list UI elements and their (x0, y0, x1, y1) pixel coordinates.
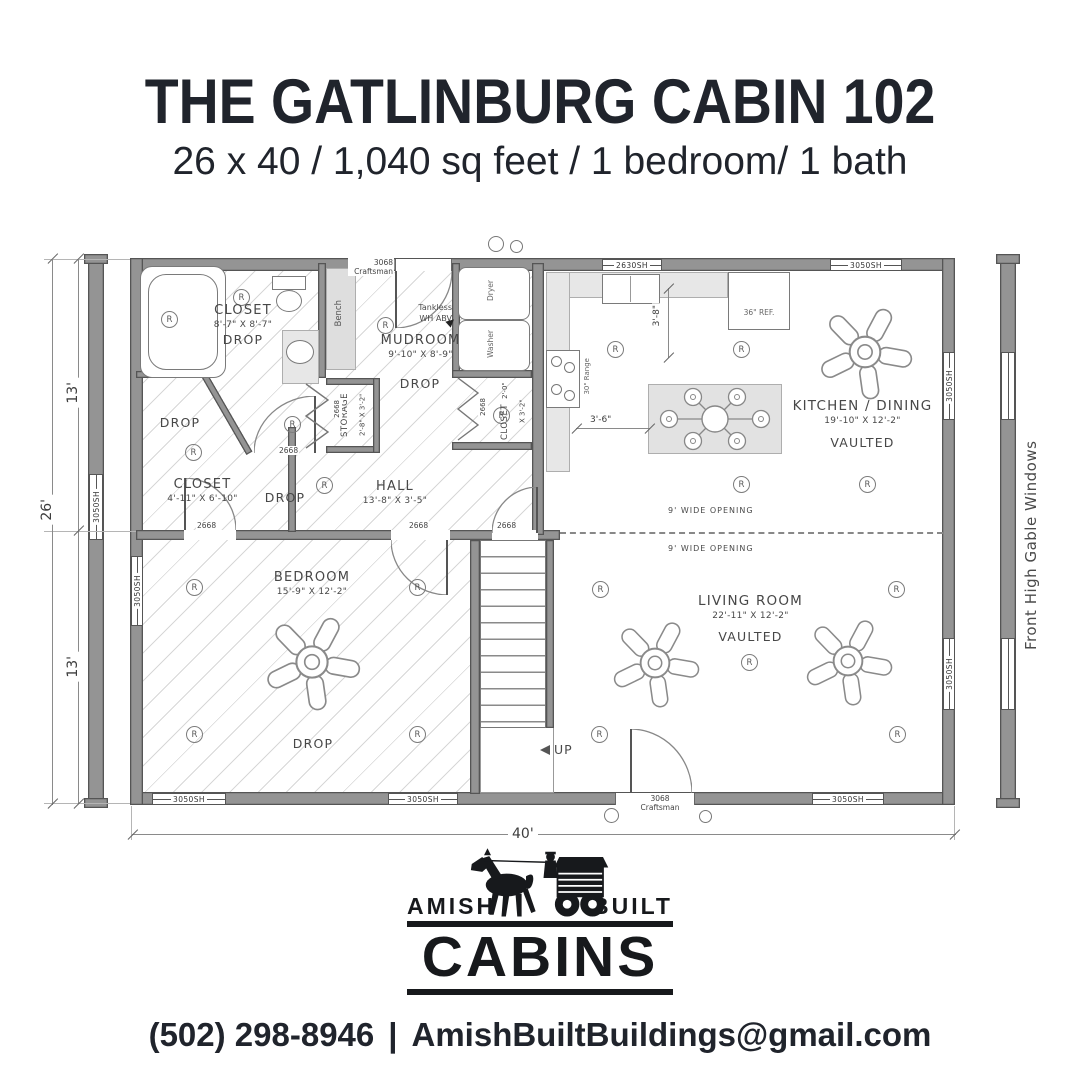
recessed-light: R (733, 476, 750, 493)
contact-line: (502) 298-8946|AmishBuiltBuildings@gmail… (0, 1016, 1080, 1054)
wall-stairs-right (546, 540, 554, 728)
tankless-label: TanklessWH ABV (394, 302, 452, 324)
extension-line (44, 259, 130, 260)
living-entry-door (630, 729, 692, 793)
horse-wagon-icon (470, 848, 610, 922)
bedroom-door-gap (391, 530, 450, 540)
dim-counter-to-island: 3'-6" (588, 415, 613, 425)
contact-email: AmishBuiltBuildings@gmail.com (412, 1016, 932, 1053)
dim-width-total-line (132, 834, 956, 835)
kitchen-sink-divider (630, 276, 631, 302)
company-logo: AMISH (407, 854, 673, 995)
range-label: 30" Range (583, 358, 591, 395)
closet-door-gap (184, 530, 236, 540)
recessed-light: R (186, 579, 203, 596)
bedroom-window-bottom-left: 3050SH (152, 793, 226, 805)
logo-divider-bottom (407, 989, 673, 995)
ceiling-fan (262, 612, 362, 712)
bedroom-window-left: 3050SH (131, 556, 143, 626)
storage-bifold-door (304, 382, 330, 450)
recessed-light: R (409, 726, 426, 743)
front-window (1001, 352, 1015, 420)
recessed-light: R (186, 726, 203, 743)
kitchen-sink (602, 274, 660, 304)
dim-depth-total-line (52, 260, 53, 805)
dim-line (576, 428, 650, 429)
wide-opening-label: 9' WIDE OPENING (668, 506, 754, 515)
recessed-light: R (859, 476, 876, 493)
recessed-light: R (377, 317, 394, 334)
mudroom-entry-gap (395, 259, 452, 271)
right-front-cap-bottom (996, 798, 1020, 808)
exterior-fixture (488, 236, 504, 252)
contact-separator: | (388, 1016, 397, 1053)
exterior-fixture (699, 810, 712, 823)
front-window (1001, 638, 1015, 710)
living-window-right: 3050SH (943, 638, 955, 710)
dim-depth-upper: 13' (65, 378, 81, 408)
up-label: UP (554, 742, 573, 757)
extension-line (44, 803, 130, 804)
recessed-light: R (591, 726, 608, 743)
recessed-light: R (185, 444, 202, 461)
wall-laundrycloset-bottom (452, 442, 532, 450)
logo-cabins: CABINS (407, 928, 673, 986)
front-gable-note: Front High Gable Windows (1022, 420, 1040, 650)
door-label: 2668 (332, 400, 342, 418)
dryer-label: Dryer (486, 280, 495, 301)
exterior-fixture (510, 240, 523, 253)
recessed-light: R (888, 581, 905, 598)
door-label: 3068Craftsman (636, 794, 684, 812)
bedroom-window-bottom-right: 3050SH (388, 793, 458, 805)
recessed-light: R (607, 341, 624, 358)
wall-stairs-left (470, 540, 480, 794)
recessed-light: R (409, 579, 426, 596)
living-window-bottom: 3050SH (812, 793, 884, 805)
recessed-light: R (733, 341, 750, 358)
dim-width-total: 40' (508, 826, 538, 842)
bench-label: Bench (334, 300, 344, 327)
page-title: THE GATLINBURG CABIN 102 (65, 66, 1015, 138)
toilet-tank (272, 276, 306, 290)
poster: THE GATLINBURG CABIN 102 26 x 40 / 1,040… (0, 0, 1080, 1080)
room-label-laundry-closet: CLOSET 2'-0" X 3'-2" (496, 382, 531, 440)
up-arrow-icon (540, 745, 550, 755)
wall-right (942, 258, 955, 805)
recessed-light: R (592, 581, 609, 598)
room-label-mudroom: MUDROOM 9'-10" X 8'-9" (348, 333, 493, 362)
island-stools (648, 384, 782, 454)
room-label-bedroom: BEDROOM 15'-9" X 12'-2" (232, 570, 392, 599)
dim-line (668, 288, 669, 358)
room-label-closet-drop: DROP (140, 415, 220, 431)
burner (551, 384, 562, 395)
dim-counter-run: 3'-8" (652, 303, 662, 328)
room-label-hall: HALL 13'-8" X 3'-5" (330, 479, 460, 508)
stairs (480, 540, 546, 728)
door-label: 2668 (478, 398, 488, 416)
burner (551, 356, 562, 367)
wall-storage-top (326, 378, 380, 385)
room-label-bath: CLOSET 8'-7" X 8'-7" DROP (163, 303, 323, 348)
wide-opening-line (560, 532, 943, 534)
contact-phone: (502) 298-8946 (149, 1016, 375, 1053)
room-label-closet: CLOSET 4'-11" X 6'-10" (145, 477, 260, 506)
kitchen-window: 2630SH (602, 259, 662, 271)
door-label: 2668 (496, 521, 517, 530)
room-label-bedroom-drop: DROP (268, 736, 358, 752)
dim-depth-total: 26' (39, 495, 55, 525)
door-label: 2668 (408, 521, 429, 530)
extension-line (44, 531, 136, 532)
ceiling-fan (816, 303, 914, 401)
recessed-light: R (741, 654, 758, 671)
recessed-light: R (284, 416, 301, 433)
page-subtitle: 26 x 40 / 1,040 sq feet / 1 bedroom/ 1 b… (0, 140, 1080, 184)
right-front-cap-top (996, 254, 1020, 264)
wall-storage-right (373, 378, 380, 453)
wide-opening-label: 9' WIDE OPENING (668, 544, 754, 553)
room-label-kitchen: KITCHEN / DINING 19'-10" X 12'-2" VAULTE… (775, 398, 950, 451)
wall-storage-bottom (326, 446, 380, 453)
door-label: 2668 (196, 521, 217, 530)
fridge-label: 36" REF. (728, 308, 790, 317)
burner (564, 390, 575, 401)
dim-depth-lower: 13' (65, 652, 81, 682)
burner (564, 362, 575, 373)
door-label: 3068Craftsman (348, 258, 394, 276)
exterior-fixture (604, 808, 619, 823)
recessed-light: R (889, 726, 906, 743)
refrigerator (728, 272, 790, 330)
room-label-living: LIVING ROOM 22'-11" X 12'-2" VAULTED (663, 593, 838, 645)
door-label: 2668 (278, 446, 299, 455)
dining-window: 3050SH (830, 259, 902, 271)
stair-landing (480, 728, 554, 793)
right-front-wall (1000, 258, 1016, 804)
room-label-hall-drop: DROP (250, 490, 320, 506)
room-label-mudroom-drop: DROP (380, 376, 460, 392)
